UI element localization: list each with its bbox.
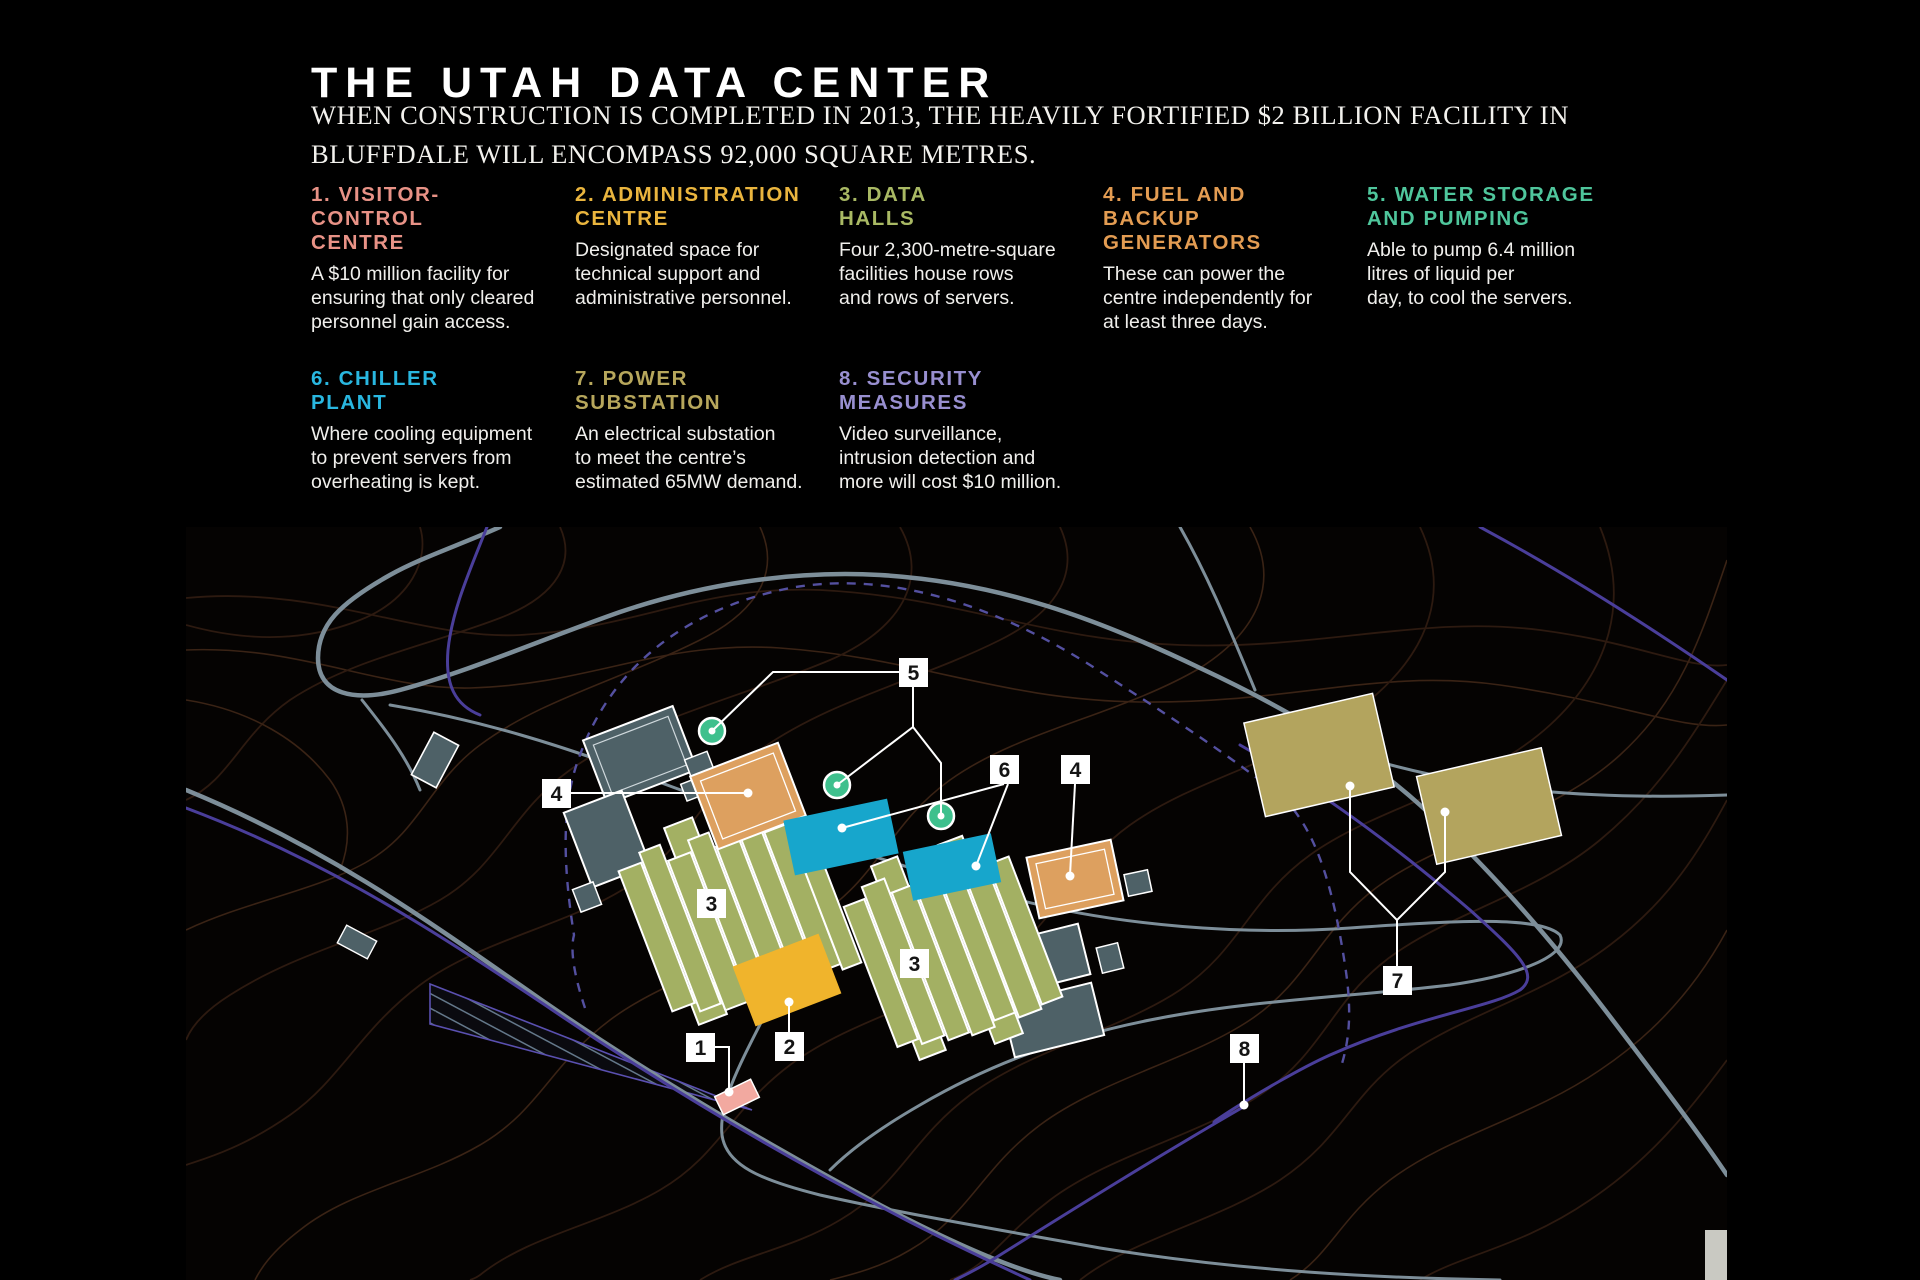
svg-text:5: 5 xyxy=(908,662,920,685)
svg-text:7: 7 xyxy=(1392,970,1404,993)
svg-text:6: 6 xyxy=(999,759,1011,782)
marker-6: 6 xyxy=(990,755,1019,784)
marker-1: 1 xyxy=(686,1033,715,1062)
marker-4-east: 4 xyxy=(1061,755,1090,784)
legend-item-visitor-control: 1. VISITOR-CONTROL CENTRE A $10 million … xyxy=(311,183,575,334)
infographic-page: 5 4 6 4 3 3 1 2 8 7 THE UTAH DATA CENTER… xyxy=(0,0,1920,1280)
legend-body: Designated space for technical support a… xyxy=(575,238,811,310)
legend-body: A $10 million facility for ensuring that… xyxy=(311,262,547,334)
svg-text:3: 3 xyxy=(909,953,921,976)
marker-5: 5 xyxy=(899,658,928,687)
legend-item-generators: 4. FUEL AND BACKUP GENERATORS These can … xyxy=(1103,183,1367,334)
slate-building xyxy=(1124,870,1152,897)
legend-heading: 7. POWER SUBSTATION xyxy=(575,367,811,415)
map-corner-fragment xyxy=(1705,1230,1727,1280)
legend-item-chiller-plant: 6. CHILLER PLANT Where cooling equipment… xyxy=(311,367,575,494)
legend-item-security: 8. SECURITY MEASURES Video surveillance,… xyxy=(839,367,1103,494)
legend-item-data-halls: 3. DATA HALLS Four 2,300-metre-square fa… xyxy=(839,183,1103,334)
legend-body: Able to pump 6.4 million litres of liqui… xyxy=(1367,238,1603,310)
marker-4-west: 4 xyxy=(542,779,571,808)
legend-item-administration: 2. ADMINISTRATION CENTRE Designated spac… xyxy=(575,183,839,334)
marker-2: 2 xyxy=(775,1032,804,1061)
legend: 1. VISITOR-CONTROL CENTRE A $10 million … xyxy=(311,183,1631,494)
legend-heading: 6. CHILLER PLANT xyxy=(311,367,547,415)
page-subtitle: WHEN CONSTRUCTION IS COMPLETED IN 2013, … xyxy=(311,96,1569,174)
legend-body: An electrical substation to meet the cen… xyxy=(575,422,811,494)
legend-body: These can power the centre independently… xyxy=(1103,262,1339,334)
legend-body: Where cooling equipment to prevent serve… xyxy=(311,422,547,494)
legend-item-substation: 7. POWER SUBSTATION An electrical substa… xyxy=(575,367,839,494)
marker-3-west: 3 xyxy=(697,889,726,918)
legend-heading: 1. VISITOR-CONTROL CENTRE xyxy=(311,183,547,255)
legend-body: Video surveillance, intrusion detection … xyxy=(839,422,1075,494)
legend-body: Four 2,300-metre-square facilities house… xyxy=(839,238,1075,310)
svg-text:3: 3 xyxy=(706,893,718,916)
marker-7: 7 xyxy=(1383,966,1412,995)
legend-heading: 8. SECURITY MEASURES xyxy=(839,367,1075,415)
svg-text:4: 4 xyxy=(1070,759,1082,782)
legend-heading: 3. DATA HALLS xyxy=(839,183,1075,231)
svg-text:1: 1 xyxy=(695,1037,707,1060)
marker-8: 8 xyxy=(1230,1034,1259,1063)
legend-heading: 4. FUEL AND BACKUP GENERATORS xyxy=(1103,183,1339,255)
svg-text:8: 8 xyxy=(1239,1038,1251,1061)
svg-text:2: 2 xyxy=(784,1036,796,1059)
svg-text:4: 4 xyxy=(551,783,563,806)
legend-heading: 2. ADMINISTRATION CENTRE xyxy=(575,183,811,231)
marker-3-east: 3 xyxy=(900,949,929,978)
legend-heading: 5. WATER STORAGE AND PUMPING xyxy=(1367,183,1603,231)
legend-item-water-storage: 5. WATER STORAGE AND PUMPING Able to pum… xyxy=(1367,183,1631,334)
